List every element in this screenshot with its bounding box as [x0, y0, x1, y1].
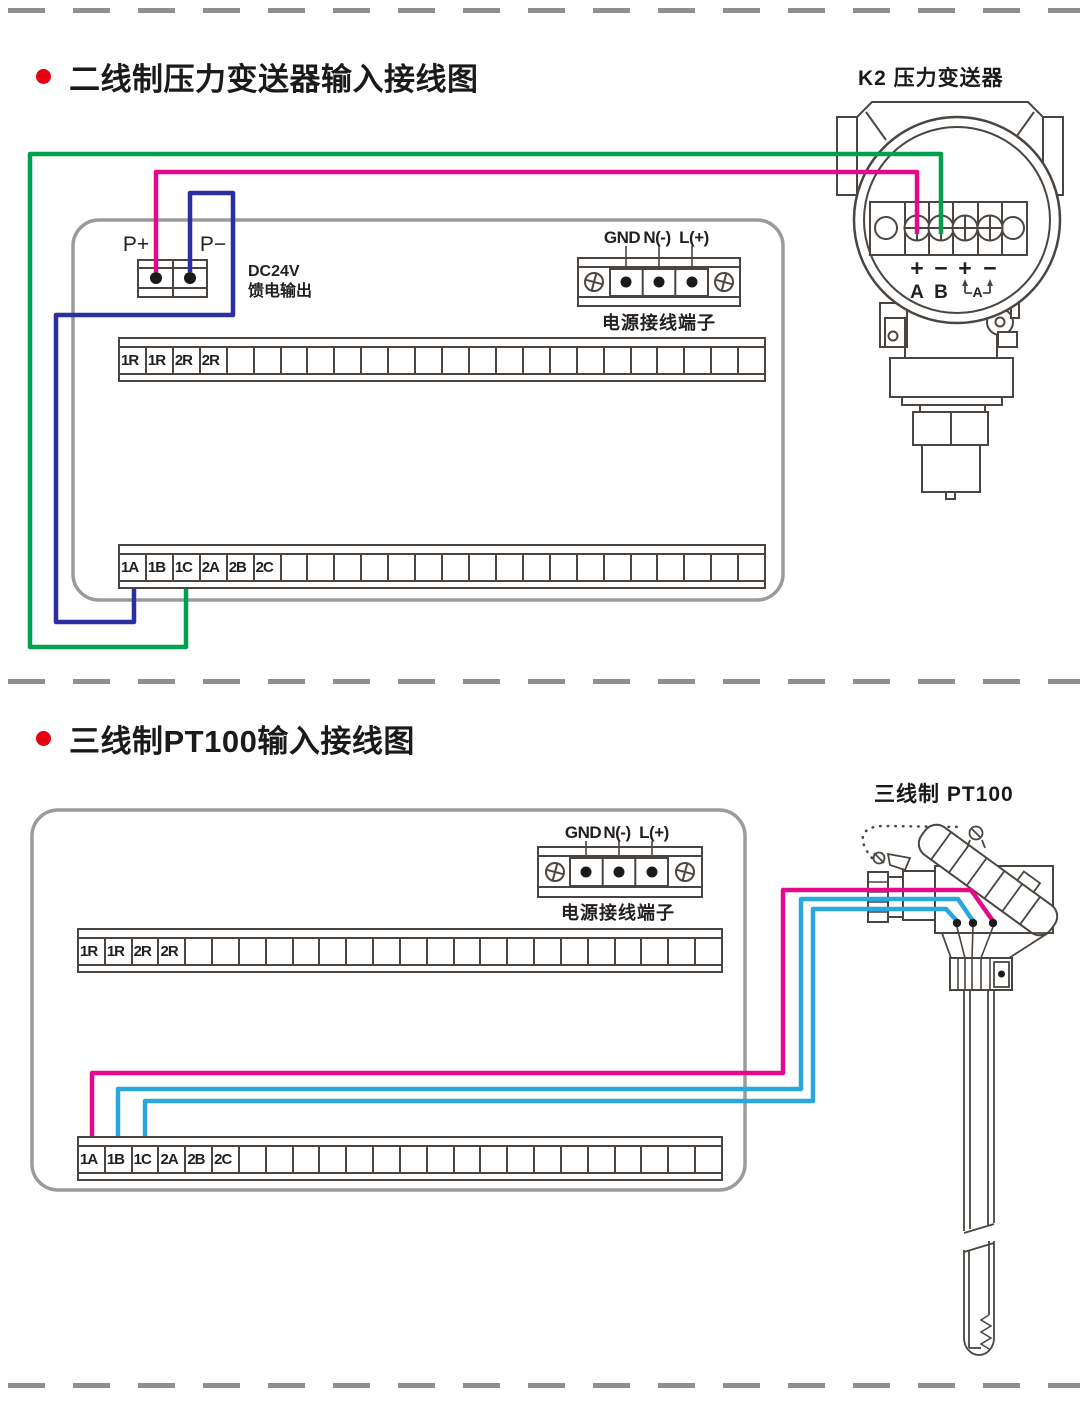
terminal-cell — [240, 939, 267, 964]
l-label-1: L(+) — [679, 228, 709, 247]
terminal-cell — [455, 939, 482, 964]
terminal-cell: 1A — [79, 1147, 106, 1172]
terminal-cell: 2A — [159, 1147, 186, 1172]
terminal-cell — [589, 939, 616, 964]
terminal-cell — [416, 348, 443, 373]
terminal-cell: 1A — [120, 555, 147, 580]
terminal-cell — [443, 555, 470, 580]
pt100-device-label: 三线制 PT100 — [874, 778, 1014, 808]
terminal-cell — [470, 348, 497, 373]
terminal-cell — [267, 1147, 294, 1172]
terminal-cell — [616, 939, 643, 964]
terminal-cell: 1R — [147, 348, 174, 373]
terminal-cell — [685, 348, 712, 373]
terminal-cell — [497, 348, 524, 373]
terminal-cell: 1R — [120, 348, 147, 373]
terminal-cell — [362, 555, 389, 580]
terminal-cell — [481, 939, 508, 964]
k2-sign-4: − — [983, 255, 996, 281]
terminal-cell — [712, 555, 739, 580]
terminal-cell — [578, 348, 605, 373]
terminal-cell: 1C — [133, 1147, 160, 1172]
terminal-cell — [562, 939, 589, 964]
terminal-cell: 2R — [201, 348, 228, 373]
terminal-cell: 2A — [201, 555, 228, 580]
relay-terminal-strip-1: 1R1R2R2R — [118, 337, 766, 382]
k2-sign-3: + — [958, 255, 971, 281]
terminal-cell — [374, 1147, 401, 1172]
terminal-cell — [508, 939, 535, 964]
n-label-2: N(-) — [603, 823, 630, 842]
terminal-cell — [524, 555, 551, 580]
terminal-cell — [320, 939, 347, 964]
bullet-icon — [36, 69, 51, 84]
section2-title: 三线制PT100输入接线图 — [69, 716, 415, 761]
terminal-cell — [481, 1147, 508, 1172]
terminal-cell: 2B — [186, 1147, 213, 1172]
section1-title-row: 二线制压力变送器输入接线图 — [36, 54, 479, 99]
section1-title: 二线制压力变送器输入接线图 — [69, 54, 479, 99]
terminal-cell — [658, 348, 685, 373]
terminal-cell — [282, 348, 309, 373]
terminal-cell — [712, 348, 739, 373]
terminal-cell — [267, 939, 294, 964]
terminal-cell — [632, 348, 659, 373]
strip-band — [120, 546, 764, 555]
wiring-diagram-page: + − + − A B A P+ P− DC24V — [0, 0, 1080, 1411]
terminal-cell: 2B — [228, 555, 255, 580]
terminal-cell — [282, 555, 309, 580]
terminal-cell — [669, 939, 696, 964]
dc24v-label: DC24V — [248, 263, 300, 280]
terminal-cell — [739, 348, 764, 373]
terminal-cell — [642, 1147, 669, 1172]
power-terminal-2: GND N(-) L(+) 电源接线端子 — [538, 823, 702, 923]
terminal-cell — [562, 1147, 589, 1172]
terminal-cell — [642, 939, 669, 964]
feed-terminal-block: P+ P− DC24V 馈电输出 — [123, 233, 312, 300]
pt100-terminal-dots — [953, 919, 997, 927]
terminal-cell — [213, 939, 240, 964]
terminal-cell: 2R — [133, 939, 160, 964]
gnd-label-1: GND — [604, 228, 641, 247]
strip-band — [120, 339, 764, 348]
terminal-cell — [228, 348, 255, 373]
terminal-cell — [696, 1147, 721, 1172]
k2-terminal-a-label: A — [910, 282, 924, 303]
terminal-cell — [470, 555, 497, 580]
k2-sign-2: − — [934, 255, 947, 281]
p-minus-label: P− — [200, 233, 226, 256]
power-terminal-1: GND N(-) L(+) 电源接线端子 — [578, 228, 740, 333]
terminal-cell — [605, 555, 632, 580]
k2-loop-label: A — [972, 284, 982, 300]
wire-pink-pplus-to-a — [156, 172, 917, 272]
terminal-cell — [455, 1147, 482, 1172]
terminal-cell: 1R — [106, 939, 133, 964]
terminal-cell — [605, 348, 632, 373]
input-terminal-strip-1: 1A1B1C2A2B2C — [118, 544, 766, 589]
terminal-cell — [240, 1147, 267, 1172]
power-caption-1: 电源接线端子 — [602, 312, 716, 333]
terminal-cell — [401, 1147, 428, 1172]
gnd-label-2: GND — [565, 823, 602, 842]
terminal-cell — [589, 1147, 616, 1172]
n-label-1: N(-) — [643, 228, 670, 247]
terminal-cell — [616, 1147, 643, 1172]
terminal-cell — [632, 555, 659, 580]
section2-title-row: 三线制PT100输入接线图 — [36, 716, 415, 761]
terminal-cell — [416, 555, 443, 580]
terminal-cell: 1C — [174, 555, 201, 580]
terminal-cell — [443, 348, 470, 373]
terminal-cell — [320, 1147, 347, 1172]
terminal-cell — [535, 939, 562, 964]
terminal-cell — [255, 348, 282, 373]
p-plus-label: P+ — [123, 233, 149, 256]
terminal-cell — [551, 555, 578, 580]
terminal-cell: 1B — [106, 1147, 133, 1172]
relay-terminal-strip-2: 1R1R2R2R — [77, 928, 723, 973]
terminal-cell — [578, 555, 605, 580]
terminal-cell — [374, 939, 401, 964]
strip-band — [79, 1138, 721, 1147]
terminal-cell — [551, 348, 578, 373]
k2-transmitter-illustration: + − + − A B A — [837, 102, 1063, 499]
terminal-cell — [186, 939, 213, 964]
terminal-cell — [389, 348, 416, 373]
power-caption-2: 电源接线端子 — [561, 902, 675, 923]
terminal-cell: 2R — [174, 348, 201, 373]
terminal-cell — [401, 939, 428, 964]
terminal-cell — [294, 1147, 321, 1172]
feed-output-label: 馈电输出 — [248, 281, 312, 300]
terminal-cell — [696, 939, 721, 964]
input-terminal-strip-2: 1A1B1C2A2B2C — [77, 1136, 723, 1181]
strip-band — [79, 964, 721, 971]
terminal-cell — [308, 555, 335, 580]
terminal-cell — [739, 555, 764, 580]
terminal-cell — [428, 939, 455, 964]
strip-band — [79, 1172, 721, 1179]
bullet-icon — [36, 731, 51, 746]
terminal-cell — [508, 1147, 535, 1172]
terminal-cell — [535, 1147, 562, 1172]
terminal-cell: 2C — [213, 1147, 240, 1172]
pt100-sheath — [964, 990, 994, 1355]
terminal-cell — [347, 1147, 374, 1172]
terminal-cell — [389, 555, 416, 580]
terminal-cell — [347, 939, 374, 964]
terminal-cell — [669, 1147, 696, 1172]
strip-band — [120, 373, 764, 380]
terminal-cell — [308, 348, 335, 373]
k2-sign-1: + — [910, 255, 923, 281]
terminal-cell: 1R — [79, 939, 106, 964]
terminal-cell — [294, 939, 321, 964]
strip-band — [79, 930, 721, 939]
terminal-cell — [497, 555, 524, 580]
k2-device-label: K2 压力变送器 — [858, 62, 1004, 92]
terminal-cell — [335, 555, 362, 580]
strip-band — [120, 580, 764, 587]
terminal-cell — [658, 555, 685, 580]
l-label-2: L(+) — [639, 823, 669, 842]
terminal-cell — [524, 348, 551, 373]
terminal-cell: 2C — [255, 555, 282, 580]
k2-terminal-b-label: B — [934, 282, 948, 303]
terminal-cell — [428, 1147, 455, 1172]
terminal-cell: 1B — [147, 555, 174, 580]
terminal-cell — [335, 348, 362, 373]
terminal-cell: 2R — [159, 939, 186, 964]
terminal-cell — [685, 555, 712, 580]
terminal-cell — [362, 348, 389, 373]
diagram-artwork: + − + − A B A P+ P− DC24V — [0, 0, 1080, 1411]
